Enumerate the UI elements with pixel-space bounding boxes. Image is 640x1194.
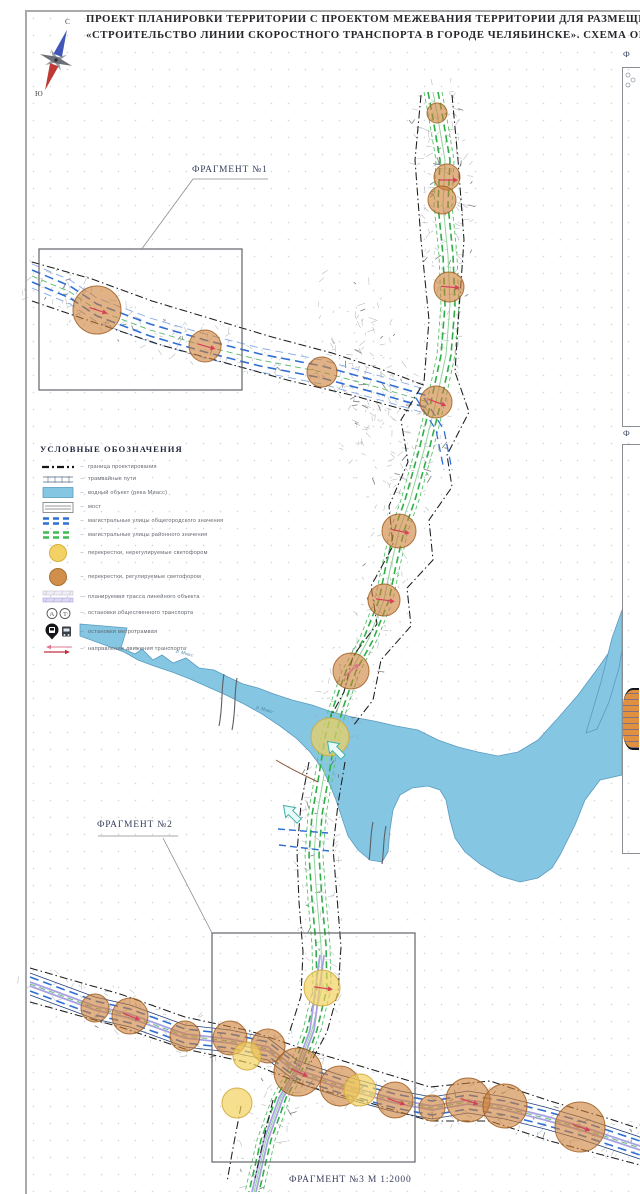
compass-rose: С Ю — [32, 12, 82, 102]
map-detail — [393, 334, 395, 336]
map-detail — [368, 630, 370, 633]
map-detail — [402, 455, 407, 461]
map-detail — [409, 465, 414, 466]
crossing-regulated-icon — [40, 567, 76, 587]
map-detail — [367, 329, 374, 332]
regulated-intersection-marker — [377, 1082, 413, 1118]
side-panel-bottom-label: Ф — [623, 428, 630, 438]
compass-south-label: Ю — [35, 89, 43, 98]
map-detail — [261, 349, 263, 351]
map-detail — [528, 1099, 532, 1100]
map-detail — [428, 173, 431, 174]
compass-south-ray — [41, 63, 59, 91]
map-detail — [431, 79, 432, 85]
map-detail — [365, 333, 366, 335]
map-detail — [369, 317, 376, 320]
map-detail — [304, 785, 305, 788]
map-detail — [183, 322, 186, 325]
map-detail — [341, 969, 342, 971]
map-detail — [288, 1109, 292, 1115]
map-detail — [104, 993, 108, 995]
map-detail — [302, 884, 303, 887]
map-detail — [338, 393, 341, 398]
map-detail — [331, 701, 335, 702]
map-detail — [380, 420, 383, 422]
map-detail — [389, 382, 390, 387]
map-detail — [56, 1016, 57, 1018]
map-detail — [381, 372, 382, 378]
map-detail — [334, 1008, 337, 1013]
map-detail — [294, 869, 299, 870]
legend-item-planned-route: –планируемая трасса линейного объекта — [40, 590, 262, 603]
map-detail — [276, 1142, 282, 1143]
map-detail — [290, 1112, 297, 1114]
map-detail — [629, 1121, 632, 1122]
map-detail — [457, 365, 458, 368]
map-detail — [323, 270, 328, 273]
map-detail — [225, 333, 230, 336]
legend-item-label: перекрестки, нерегулируемые светофором — [88, 550, 208, 556]
legend-item-label: направление движения транспорта — [88, 646, 186, 652]
road-detail — [276, 760, 318, 782]
map-detail — [411, 410, 412, 412]
map-detail — [353, 401, 360, 402]
map-detail — [459, 257, 461, 259]
map-detail — [412, 119, 415, 123]
map-detail — [442, 340, 449, 341]
map-detail — [414, 374, 419, 377]
map-detail — [54, 970, 58, 974]
fragment-1-label: ФРАГМЕНТ №1 — [192, 165, 268, 175]
legend-separator: – — [76, 594, 88, 600]
map-detail — [26, 976, 27, 983]
map-detail — [190, 361, 193, 365]
map-detail — [358, 441, 359, 445]
map-detail — [456, 372, 459, 373]
legend-item-street-district: –магистральные улицы районного значения — [40, 530, 262, 540]
map-detail — [367, 399, 370, 406]
map-detail — [453, 228, 459, 229]
map-detail — [68, 282, 71, 289]
map-detail — [611, 1151, 613, 1156]
map-detail — [377, 642, 379, 649]
map-detail — [307, 801, 309, 808]
map-detail — [69, 320, 71, 323]
compass-north-ray — [53, 28, 71, 56]
map-detail — [52, 996, 56, 1001]
map-detail — [279, 1141, 287, 1142]
map-detail — [384, 625, 386, 627]
map-detail — [330, 963, 337, 967]
map-detail — [375, 414, 376, 421]
unregulated-intersection-marker — [233, 1042, 261, 1070]
route-line-cross_f2b — [279, 845, 329, 851]
map-detail — [314, 910, 316, 913]
bridge-icon — [40, 502, 76, 513]
map-detail — [298, 928, 299, 931]
side-panel-fragment-preview — [623, 688, 639, 750]
map-detail — [435, 248, 439, 250]
traffic-direction-icon — [40, 644, 76, 655]
map-detail — [344, 385, 345, 388]
map-detail — [228, 327, 229, 334]
map-detail — [330, 668, 332, 674]
map-detail — [129, 989, 134, 993]
route-line-transit_route — [245, 92, 441, 1192]
map-detail — [412, 446, 414, 449]
map-detail — [380, 336, 383, 338]
map-detail — [365, 409, 366, 412]
map-detail — [421, 127, 427, 129]
map-detail — [519, 1125, 520, 1128]
map-detail — [601, 1148, 606, 1151]
map-detail — [390, 416, 395, 421]
legend-separator: – — [76, 504, 88, 510]
map-detail — [438, 446, 439, 451]
legend-item-water: –водный объект (река Миасс) — [40, 487, 262, 498]
map-detail — [352, 648, 353, 652]
map-detail — [65, 298, 67, 306]
map-detail — [401, 379, 402, 381]
map-detail — [470, 250, 472, 254]
map-detail — [426, 232, 430, 237]
map-detail — [340, 379, 342, 383]
map-detail — [425, 507, 429, 511]
map-detail — [358, 303, 365, 305]
map-detail — [449, 91, 453, 92]
map-detail — [140, 345, 145, 348]
map-detail — [362, 577, 364, 580]
map-detail — [387, 384, 389, 387]
map-detail — [372, 416, 373, 421]
map-detail — [405, 468, 408, 471]
map-detail — [304, 868, 310, 871]
map-detail — [348, 405, 351, 410]
map-detail — [387, 465, 392, 466]
map-detail — [543, 1132, 545, 1139]
map-detail — [126, 312, 132, 317]
unregulated-intersection-marker — [222, 1088, 252, 1118]
map-detail — [456, 233, 460, 239]
map-detail — [434, 251, 435, 255]
map-detail — [468, 205, 475, 207]
map-detail — [356, 315, 359, 320]
map-detail — [467, 176, 473, 177]
map-detail — [371, 532, 375, 536]
map-detail — [637, 1132, 639, 1135]
map-detail — [317, 884, 323, 885]
map-detail — [455, 119, 459, 126]
map-detail — [365, 367, 367, 374]
map-detail — [140, 321, 141, 325]
map-detail — [386, 391, 392, 393]
map-detail — [319, 948, 320, 950]
map-detail — [66, 979, 68, 982]
legend-item-label: остановки общественного транспорта — [88, 610, 193, 616]
map-detail — [368, 546, 370, 548]
map-detail — [431, 100, 434, 102]
legend-item-label: магистральные улицы общегородского значе… — [88, 518, 223, 524]
legend-title: УСЛОВНЫЕ ОБОЗНАЧЕНИЯ — [40, 444, 262, 454]
map-detail — [315, 691, 321, 692]
crossing-unregulated-icon — [40, 543, 76, 563]
map-detail — [340, 372, 341, 375]
side-panel-top-decoration — [624, 70, 638, 90]
map-detail — [425, 249, 426, 252]
map-detail — [390, 577, 392, 581]
map-detail — [331, 343, 334, 348]
map-detail — [375, 505, 377, 509]
map-detail — [516, 1132, 518, 1135]
map-detail — [419, 215, 421, 218]
map-detail — [122, 324, 126, 325]
map-detail — [334, 850, 335, 853]
map-detail — [386, 366, 391, 369]
map-detail — [171, 354, 175, 359]
regulated-intersection-marker — [427, 103, 447, 123]
map-detail — [426, 130, 433, 133]
legend-item-label: остановки метротрамвая — [88, 629, 157, 635]
map-detail — [405, 432, 411, 433]
street-city-icon — [40, 516, 76, 526]
map-detail — [349, 460, 353, 464]
map-detail — [455, 223, 460, 226]
map-detail — [130, 307, 133, 308]
map-detail — [392, 376, 393, 378]
map-detail — [382, 404, 383, 406]
map-detail — [450, 78, 451, 82]
map-detail — [327, 698, 331, 699]
map-detail — [418, 96, 423, 97]
map-detail — [159, 336, 163, 337]
map-detail — [387, 513, 388, 516]
map-detail — [404, 554, 407, 559]
map-detail — [470, 181, 472, 183]
title-line-1: ПРОЕКТ ПЛАНИРОВКИ ТЕРРИТОРИИ С ПРОЕКТОМ … — [86, 13, 640, 25]
map-detail — [384, 409, 386, 410]
map-detail — [615, 1154, 616, 1156]
legend-item-street-city: –магистральные улицы общегородского знач… — [40, 516, 262, 526]
map-detail — [384, 505, 385, 511]
regulated-intersection-marker — [170, 1021, 200, 1051]
map-detail — [402, 580, 405, 583]
map-detail — [353, 407, 356, 410]
map-detail — [320, 911, 321, 917]
map-detail — [452, 121, 453, 127]
map-detail — [371, 320, 378, 323]
map-detail — [423, 490, 426, 492]
street-district-icon — [40, 530, 76, 540]
map-detail — [451, 105, 453, 106]
map-detail — [440, 347, 446, 348]
map-detail — [319, 1058, 325, 1059]
map-detail — [68, 273, 72, 276]
map-detail — [328, 678, 329, 684]
transport-stop-icon: АТ — [40, 607, 76, 620]
map-detail — [409, 120, 411, 123]
regulated-intersection-marker — [428, 186, 456, 214]
legend-item-label: трамвайные пути — [88, 476, 136, 482]
side-panel-top — [622, 67, 640, 427]
map-detail — [390, 453, 394, 457]
map-detail — [370, 353, 374, 357]
map-detail — [382, 383, 386, 388]
map-detail — [18, 976, 19, 983]
map-detail — [80, 995, 82, 998]
metrotram-stop-icon — [40, 623, 76, 640]
map-detail — [424, 469, 431, 471]
drawing-sheet: р. Миасср. Миасс С Ю ПРОЕКТ ПЛАНИРОВКИ Т… — [0, 0, 640, 1194]
map-detail — [411, 470, 415, 471]
map-detail — [463, 153, 468, 159]
svg-text:А: А — [50, 610, 55, 617]
map-detail — [375, 466, 377, 469]
map-detail — [387, 482, 389, 485]
map-detail — [390, 319, 393, 323]
map-detail — [433, 222, 436, 223]
legend-separator: – — [76, 476, 88, 482]
map-detail — [368, 650, 372, 653]
map-detail — [319, 315, 321, 318]
map-detail — [304, 797, 311, 798]
map-detail — [176, 345, 177, 349]
map-detail — [418, 163, 420, 165]
map-detail — [71, 983, 74, 988]
legend-separator: – — [76, 629, 88, 635]
map-detail — [117, 340, 119, 341]
water-icon — [40, 487, 76, 498]
map-detail — [366, 433, 370, 437]
map-detail — [394, 474, 399, 475]
map-detail — [378, 419, 380, 421]
regulated-intersection-marker — [419, 1095, 445, 1121]
map-detail — [354, 282, 356, 284]
map-detail — [554, 1106, 559, 1108]
map-detail — [448, 130, 451, 132]
map-detail — [426, 153, 433, 157]
map-detail — [319, 278, 324, 283]
map-detail — [328, 904, 329, 908]
map-detail — [328, 950, 334, 955]
map-detail — [180, 1056, 187, 1057]
map-detail — [326, 818, 328, 825]
map-detail — [318, 302, 319, 307]
map-detail — [461, 204, 468, 205]
legend-item-crossing-regulated: –перекрестки, регулируемые светофором — [40, 567, 262, 587]
legend-item-label: магистральные улицы районного значения — [88, 532, 207, 538]
map-detail — [323, 691, 328, 694]
map-detail — [328, 818, 333, 821]
map-detail — [470, 161, 473, 165]
map-detail — [437, 132, 439, 134]
legend: УСЛОВНЫЕ ОБОЗНАЧЕНИЯ –граница проектиров… — [40, 444, 262, 658]
map-detail — [460, 164, 461, 167]
map-detail — [391, 583, 392, 585]
boundary-icon — [40, 463, 76, 471]
map-detail — [428, 138, 429, 143]
map-detail — [59, 306, 61, 307]
map-detail — [215, 326, 218, 330]
map-detail — [377, 302, 378, 308]
map-detail — [380, 298, 382, 299]
map-detail — [345, 386, 348, 387]
map-detail — [362, 563, 365, 566]
map-detail — [404, 432, 410, 433]
tram-icon — [40, 475, 76, 484]
map-detail — [332, 349, 335, 350]
map-detail — [395, 492, 402, 494]
map-detail — [261, 1078, 263, 1081]
map-detail — [397, 451, 402, 456]
legend-item-traffic-direction: –направление движения транспорта — [40, 644, 262, 655]
map-detail — [247, 371, 248, 374]
map-detail — [95, 1026, 99, 1028]
fragment-3-label: ФРАГМЕНТ №3 М 1:2000 — [289, 1175, 412, 1185]
map-detail — [264, 1091, 267, 1098]
map-detail — [79, 985, 80, 988]
map-detail — [604, 1155, 608, 1159]
map-detail — [134, 995, 136, 997]
map-detail — [378, 535, 382, 537]
legend-item-transport-stop: АТ–остановки общественного транспорта — [40, 607, 262, 620]
legend-separator: – — [76, 518, 88, 524]
map-detail — [354, 332, 356, 333]
map-detail — [380, 371, 381, 376]
map-detail — [406, 405, 412, 406]
map-detail — [341, 445, 343, 447]
route-line-transit_route — [254, 92, 450, 1192]
map-detail — [332, 647, 334, 648]
map-detail — [382, 357, 384, 358]
map-detail — [399, 441, 402, 443]
map-detail — [158, 350, 161, 355]
legend-item-label: мост — [88, 504, 101, 510]
map-detail — [343, 391, 348, 393]
map-detail — [402, 361, 407, 367]
legend-separator: – — [76, 646, 88, 652]
map-detail — [353, 611, 355, 612]
legend-items: –граница проектирования–трамвайные пути–… — [40, 463, 262, 655]
map-detail — [458, 137, 459, 140]
map-detail — [339, 387, 341, 389]
map-detail — [393, 485, 396, 488]
leader-line — [141, 179, 193, 250]
map-detail — [357, 321, 360, 328]
legend-separator: – — [76, 550, 88, 556]
map-detail — [239, 1140, 241, 1146]
map-detail — [172, 333, 174, 335]
legend-separator: – — [76, 610, 88, 616]
map-detail — [328, 895, 334, 897]
map-detail — [352, 363, 353, 367]
map-detail — [350, 397, 354, 399]
legend-item-boundary: –граница проектирования — [40, 463, 262, 471]
planned-route-icon — [40, 590, 76, 603]
map-detail — [113, 985, 114, 987]
legend-item-label: водный объект (река Миасс) — [88, 490, 167, 496]
map-detail — [53, 983, 57, 985]
map-detail — [326, 354, 332, 356]
fragment-2-label: ФРАГМЕНТ №2 — [97, 820, 173, 830]
map-detail — [447, 416, 452, 417]
map-detail — [440, 241, 446, 244]
legend-item-label: планируемая трасса линейного объекта — [88, 594, 200, 600]
map-detail — [22, 297, 28, 300]
map-detail — [451, 1124, 453, 1129]
map-detail — [391, 452, 395, 454]
map-detail — [401, 463, 403, 467]
map-detail — [316, 1103, 318, 1104]
